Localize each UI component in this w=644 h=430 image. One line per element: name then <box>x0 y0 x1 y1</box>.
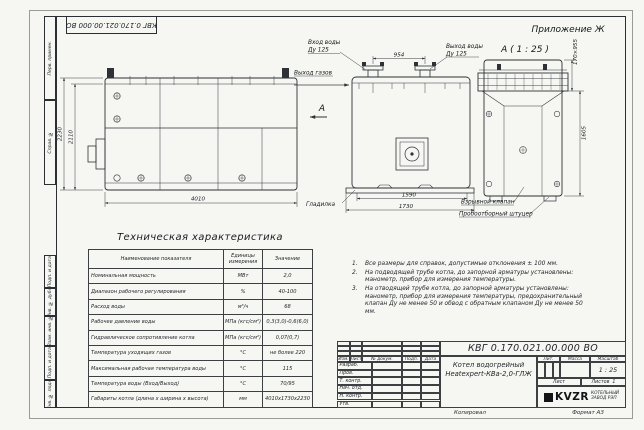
label-trowel: Гладилка <box>306 202 335 208</box>
spec-cell: м³/ч <box>224 299 263 314</box>
spec-header-name: Наименование показателя <box>89 250 224 269</box>
note-item: 2.На подводящей трубе котла, до запорной… <box>352 270 624 285</box>
row-tkontr: Т. контр. <box>337 377 372 385</box>
bolt-marks <box>114 93 246 182</box>
label-water-out-dn: Ду 125 <box>445 52 467 58</box>
tube-bundle-box <box>478 73 568 91</box>
appendix-label: Приложение Ж <box>531 25 604 35</box>
lifting-lug-left <box>107 68 114 78</box>
format-label: Формат А3 <box>548 410 628 416</box>
water-inlet-pipe <box>363 66 383 70</box>
section-view-arrow: А <box>310 104 327 117</box>
side-view-dims <box>60 78 297 207</box>
spec-cell: 40-100 <box>263 284 313 299</box>
spec-table: Наименование показателя Единицы измерени… <box>88 249 313 408</box>
product-name-line1: Котел водогрейный <box>453 361 524 370</box>
spec-cell: Температура воды (Вход/Выход) <box>89 376 224 391</box>
dim-inner-width: 1590 <box>402 193 417 199</box>
side-view <box>88 68 297 190</box>
row-prov: Пров. <box>337 370 372 378</box>
dim-height-outer: 2230 <box>58 126 64 141</box>
blank-cell <box>402 377 421 385</box>
spec-cell: 0,07(0,7) <box>263 330 313 345</box>
view-a-title: А ( 1 : 25 ) <box>500 45 549 55</box>
spec-header-value: Значение <box>263 250 313 269</box>
row-razrab: Разраб. <box>337 362 372 370</box>
spec-cell: Расход воды <box>89 299 224 314</box>
front-view <box>346 62 474 193</box>
blank-cell <box>372 377 402 385</box>
label-gas-out: Выход газов <box>294 71 333 77</box>
spec-cell: мм <box>224 392 263 407</box>
manhole-flange <box>96 139 105 169</box>
spec-row: Расход водым³/ч68 <box>89 299 313 314</box>
dim-outer-width: 1730 <box>399 204 414 210</box>
row-nkontr: Н. контр. <box>337 393 372 401</box>
blank-cell <box>372 393 402 401</box>
spec-row: Номинальная мощностьМВт2,0 <box>89 269 313 284</box>
spec-cell: % <box>224 284 263 299</box>
blank-cell <box>421 393 440 401</box>
dim-a-height: 1605 <box>582 125 588 140</box>
blank-cell <box>402 393 421 401</box>
label-water-in: Вход воды <box>308 40 341 46</box>
spec-cell: 70/95 <box>263 376 313 391</box>
spec-cell: 115 <box>263 361 313 376</box>
label-water-out: Выход воды <box>446 44 483 50</box>
label-explosion-valve: Взрывной клапан <box>461 200 515 206</box>
lit-subcell <box>537 362 545 378</box>
blank-cell <box>372 362 402 370</box>
note-item: 3.На отводящей трубе котла, до запорной … <box>352 286 624 316</box>
spec-cell: Максимальная рабочая температура воды <box>89 361 224 376</box>
spec-cell: °С <box>224 345 263 360</box>
kvzr-logo-caption: КОТЕЛЬНЫЙ ЗАВОД РЭП <box>591 392 619 402</box>
blank-cell <box>402 385 421 393</box>
blank-cell <box>402 401 421 409</box>
note-item: 1.Все размеры для справок, допустимые от… <box>352 261 624 268</box>
spec-header-units: Единицы измерения <box>224 250 263 269</box>
blank-cell <box>421 385 440 393</box>
spec-row: Диапазон рабочего регулирования%40-100 <box>89 284 313 299</box>
blank-cell <box>372 370 402 378</box>
dim-bundle: 170×955 <box>573 39 579 65</box>
blank-cell <box>402 370 421 378</box>
spec-row: Максимальная рабочая температура воды°С1… <box>89 361 313 376</box>
spec-cell: Номинальная мощность <box>89 269 224 284</box>
spec-row: Температура уходящих газов°Сне более 220 <box>89 345 313 360</box>
spec-cell: °С <box>224 361 263 376</box>
dim-height-inner: 2110 <box>69 129 75 144</box>
lit-subcell <box>553 362 560 378</box>
spec-cell: 2,0 <box>263 269 313 284</box>
section-letter: А <box>318 104 325 114</box>
row-nachotd: Нач. отд. <box>337 385 372 393</box>
dim-length: 4010 <box>191 197 206 203</box>
spec-cell: 0,3(3,0)-0,6(6,0) <box>263 315 313 330</box>
label-sampling-fitting: Пробоотборный штуцер <box>459 212 533 218</box>
mass-cell <box>560 362 590 378</box>
dim-pipes: 954 <box>394 53 405 59</box>
water-outlet-pipe <box>415 66 435 70</box>
spec-header-row: Наименование показателя Единицы измерени… <box>89 250 313 269</box>
spec-cell: Диапазон рабочего регулирования <box>89 284 224 299</box>
blank-cell <box>372 401 402 409</box>
blank-cell <box>421 362 440 370</box>
spec-cell: Гидравлическое сопротивление котла <box>89 330 224 345</box>
product-name-cell: Котел водогрейный Heatexpert-КВа-2,0-ГЛЖ <box>440 356 537 408</box>
kvzr-logo-text: KVZR <box>555 391 589 403</box>
a-view-bolts <box>486 111 560 187</box>
spec-table-title: Техническая характеристика <box>88 232 312 243</box>
spec-row: Температура воды (Вход/Выход)°С70/95 <box>89 376 313 391</box>
spec-cell: °С <box>224 376 263 391</box>
kvzr-logo-icon <box>544 393 553 402</box>
blank-cell <box>372 385 402 393</box>
sheets-cell: Листов 1 <box>581 378 626 386</box>
blank-cell <box>421 370 440 378</box>
spec-cell: Габариты котла (длина х ширина х высота) <box>89 392 224 407</box>
spec-cell: МВт <box>224 269 263 284</box>
spec-row: Гидравлическое сопротивление котлаМПа (к… <box>89 330 313 345</box>
product-name-line2: Heatexpert-КВа-2,0-ГЛЖ <box>445 370 531 379</box>
copied-label: Копировал <box>430 410 510 416</box>
blank-cell <box>421 401 440 409</box>
blank-cell <box>402 362 421 370</box>
spec-cell: 68 <box>263 299 313 314</box>
label-water-in-dn: Ду 125 <box>307 48 329 54</box>
spec-cell: Температура уходящих газов <box>89 345 224 360</box>
spec-row: Рабочее давление водыМПа (кгс/см²)0,3(3,… <box>89 315 313 330</box>
sheet-cell: Лист <box>537 378 581 386</box>
a-view <box>478 60 568 201</box>
logo-cell: KVZR КОТЕЛЬНЫЙ ЗАВОД РЭП <box>537 386 626 408</box>
lifting-lug-right <box>282 68 289 78</box>
scale-value: 1 : 25 <box>590 362 626 378</box>
spec-cell: не более 220 <box>263 345 313 360</box>
notes-list: 1.Все размеры для справок, допустимые от… <box>352 261 624 318</box>
spec-cell: Рабочее давление воды <box>89 315 224 330</box>
lit-subcell <box>545 362 553 378</box>
spec-cell: МПа (кгс/см²) <box>224 330 263 345</box>
spec-row: Габариты котла (длина х ширина х высота)… <box>89 392 313 407</box>
spec-cell: МПа (кгс/см²) <box>224 315 263 330</box>
drawing-sheet: КВГ 0.170.021.00.000 ВО Перв. примен. Сп… <box>0 0 644 430</box>
row-utv: Утв. <box>337 401 372 409</box>
blank-cell <box>421 377 440 385</box>
doc-number: КВГ 0.170.021.00.000 ВО <box>440 341 626 356</box>
spec-cell: 4010х1730х2230 <box>263 392 313 407</box>
